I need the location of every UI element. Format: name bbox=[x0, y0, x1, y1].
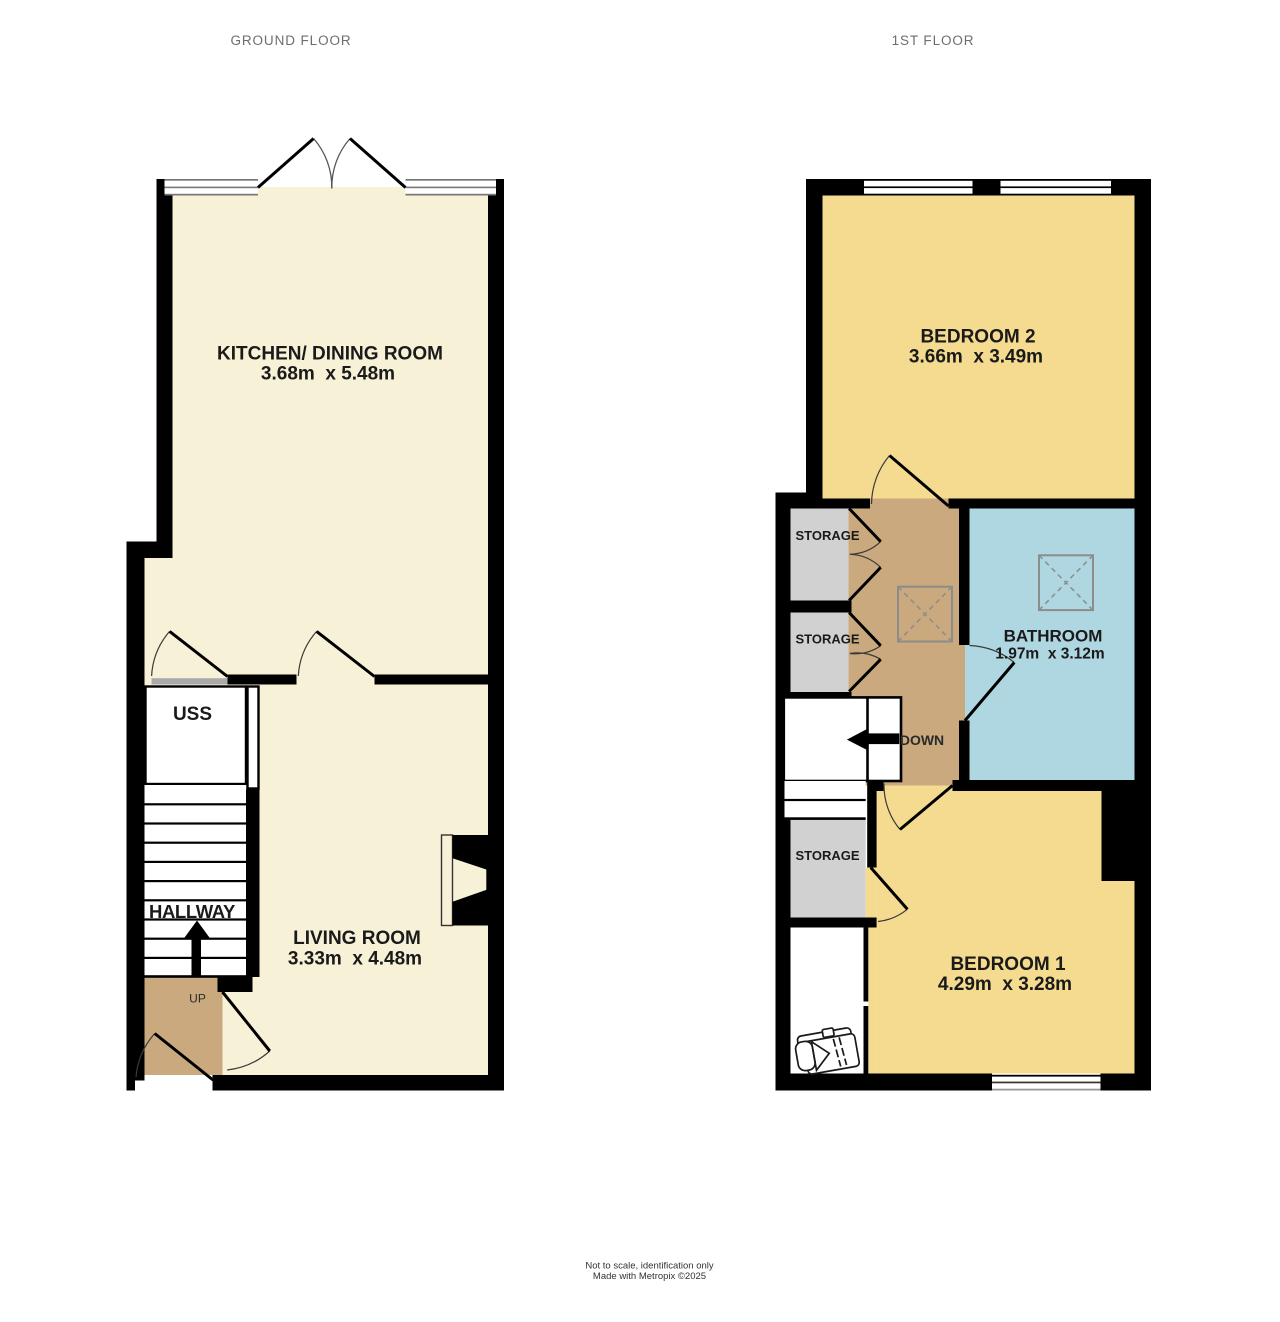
svg-text:KITCHEN/ DINING ROOM: KITCHEN/ DINING ROOM bbox=[217, 344, 443, 365]
svg-text:STORAGE: STORAGE bbox=[795, 848, 859, 863]
svg-text:Made with Metropix ©2025: Made with Metropix ©2025 bbox=[593, 1271, 706, 1282]
svg-text:BATHROOM: BATHROOM bbox=[1004, 627, 1103, 646]
svg-text:HALLWAY: HALLWAY bbox=[149, 901, 236, 922]
svg-text:GROUND FLOOR: GROUND FLOOR bbox=[230, 33, 351, 48]
svg-text:BEDROOM 1: BEDROOM 1 bbox=[950, 954, 1066, 975]
svg-text:USS: USS bbox=[173, 704, 212, 725]
svg-text:BEDROOM 2: BEDROOM 2 bbox=[920, 327, 1035, 348]
svg-text:STORAGE: STORAGE bbox=[795, 528, 859, 543]
svg-text:1.97m x 3.12m: 1.97m x 3.12m bbox=[995, 646, 1104, 663]
svg-text:3.33m x 4.48m: 3.33m x 4.48m bbox=[288, 949, 422, 970]
svg-text:LIVING ROOM: LIVING ROOM bbox=[293, 928, 421, 949]
svg-text:4.29m x 3.28m: 4.29m x 3.28m bbox=[938, 974, 1072, 995]
svg-text:DOWN: DOWN bbox=[900, 732, 944, 748]
svg-text:1ST FLOOR: 1ST FLOOR bbox=[892, 33, 975, 48]
svg-text:UP: UP bbox=[189, 992, 206, 1006]
svg-text:3.66m x 3.49m: 3.66m x 3.49m bbox=[909, 347, 1043, 368]
svg-text:3.68m x 5.48m: 3.68m x 5.48m bbox=[261, 364, 395, 385]
svg-text:STORAGE: STORAGE bbox=[795, 632, 859, 647]
